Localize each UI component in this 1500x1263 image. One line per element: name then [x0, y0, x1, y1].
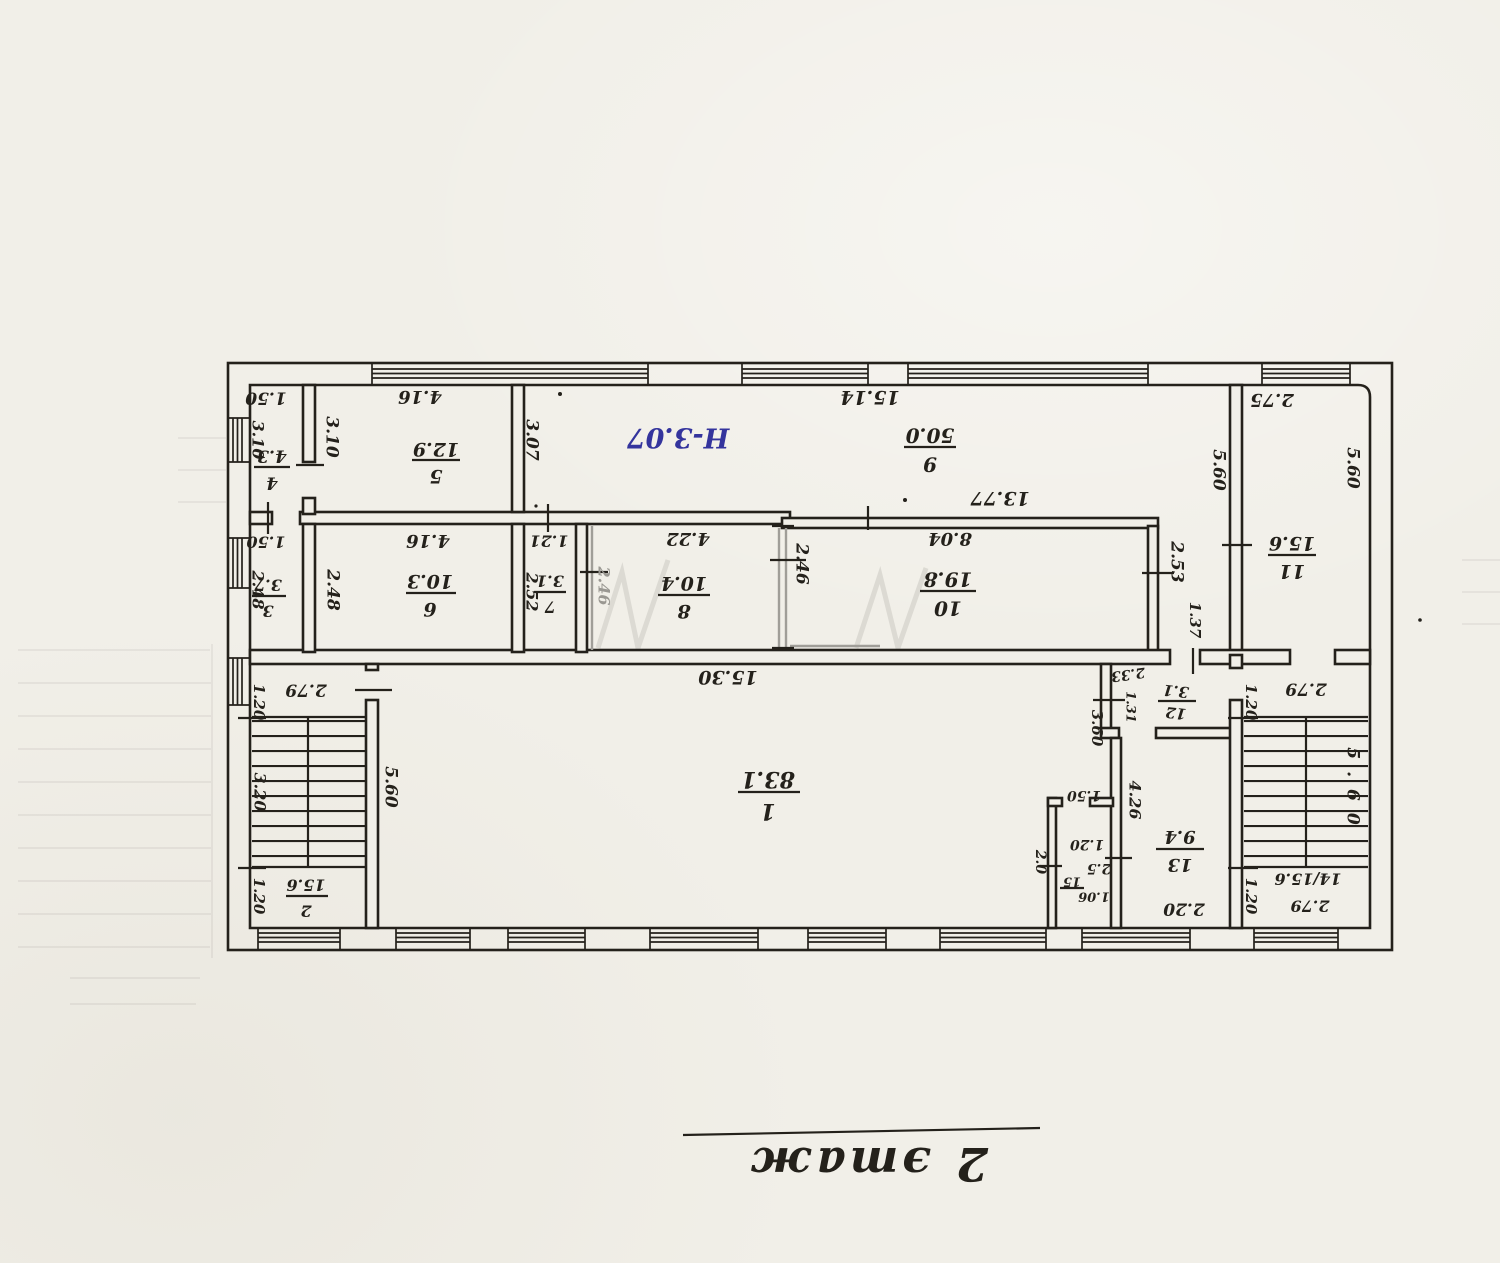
dim-room11-height: 5.60 [1343, 447, 1363, 489]
interior-walls [250, 385, 1370, 928]
dim-room4-width: 1.50 [245, 388, 287, 408]
room5-area: 12.9 [413, 438, 459, 460]
dim-room10-width: 8.04 [928, 528, 973, 549]
room14-label: 14/15.6 [1274, 870, 1341, 889]
dim-room5-width: 4.16 [398, 386, 442, 407]
room9-area: 50.0 [906, 424, 955, 448]
room7-number: 7 [544, 598, 555, 617]
dim-room14-bottom: 2.79 [1291, 897, 1331, 916]
room4-number: 4 [266, 473, 278, 493]
room10-area: 19.8 [924, 568, 973, 592]
room2-area: 15.6 [287, 876, 326, 895]
dim-room15-door: 1.20 [1070, 836, 1104, 852]
room10-number: 10 [934, 597, 962, 621]
room5-number: 5 [429, 465, 442, 487]
room13-area: 9.4 [1164, 826, 1195, 847]
dim-arm-bottom: 1.37 [1186, 602, 1204, 639]
dim-room11-width: 2.75 [1250, 389, 1295, 410]
dim-room6-width: 4.16 [406, 530, 450, 551]
dim-room12-width: 2.33 [1110, 664, 1147, 685]
labels-middle-band: 1.50 2.48 2.48 4.16 1.21 2.52 2.46 4.22 … [247, 528, 1204, 639]
dim-room7-width: 1.21 [530, 532, 569, 551]
dim-room6-height: 2.48 [323, 568, 343, 611]
dim-landing-right-width: 2.79 [1285, 679, 1328, 699]
dim-room9-height: 3.07 [522, 419, 542, 461]
room9-number: 9 [923, 453, 937, 477]
room8-area: 10.4 [661, 572, 707, 594]
watermark-strokes [598, 560, 926, 648]
dim-room5-height: 3.10 [322, 416, 342, 458]
room4-area: 4.3 [257, 446, 287, 466]
dim-room14-depth: 1.20 [1242, 878, 1260, 915]
dim-room10-left: 2.46 [792, 542, 812, 585]
dim-pencil-partition: 2.46 [595, 566, 614, 606]
room6-number: 6 [423, 598, 436, 620]
floor-plan-canvas: 15.14 1.50 4.16 2.75 3.10 3.10 3.07 5.60… [0, 0, 1500, 1263]
dim-landing-right-depth: 1.20 [1242, 684, 1260, 721]
room8-number: 8 [677, 600, 691, 622]
room6-area: 10.3 [407, 570, 453, 592]
dim-room9-width: 15.14 [840, 386, 900, 408]
floor-caption-text: 2 этаж [748, 1137, 989, 1191]
room2-number: 2 [300, 902, 312, 921]
room12-area: 3.1 [1162, 681, 1190, 702]
dim-room15-top: 1.50 [1067, 787, 1101, 803]
dim-stair-left-run: 3.20 [251, 773, 270, 812]
dim-landing-left-width: 2.79 [285, 680, 328, 700]
room13-number: 13 [1167, 854, 1192, 875]
room1-number: 1 [760, 798, 775, 824]
dim-room3-width: 1.50 [247, 533, 286, 552]
dim-stairwell-right-height: 5.60 [1343, 747, 1363, 836]
dim-room9-bottom: 13.77 [970, 487, 1030, 509]
dim-room8-width: 4.22 [666, 528, 710, 549]
room11-area: 15.6 [1269, 532, 1315, 554]
ceiling-height-note: Н-3.07 [627, 422, 731, 453]
room3-number: 3 [262, 602, 273, 621]
dim-stairwell-left-height: 5.60 [381, 766, 401, 808]
dim-room12-height: 1.31 [1123, 691, 1138, 723]
dim-room1-width: 15.30 [698, 666, 758, 688]
room15-extra-dim: 1.06 [1078, 889, 1110, 904]
dim-room15-left: 2.0 [1032, 849, 1048, 875]
floor-caption: 2 этаж [683, 1128, 1040, 1191]
dim-room2-depth: 1.20 [250, 878, 268, 915]
dim-room13-height: 4.26 [1126, 781, 1145, 820]
room11-number: 11 [1279, 560, 1305, 582]
room1-area: 83.1 [741, 766, 796, 792]
dim-room12-outside: 3.60 [1088, 710, 1106, 747]
dim-room13-width: 2.20 [1163, 899, 1206, 919]
dim-arm-width: 2.53 [1167, 540, 1187, 583]
room3-area: 3.7 [254, 576, 282, 595]
room15-number: 15 [1063, 874, 1081, 889]
room12-number: 12 [1165, 703, 1188, 723]
room7-area: 3.1 [536, 572, 564, 591]
dim-room9-arm-height: 5.60 [1209, 449, 1229, 491]
labels-bottom-band: 15.30 83.1 1 5.60 2.79 1.20 3.20 1.20 15… [250, 664, 1363, 921]
dim-landing-left-depth: 1.20 [250, 684, 268, 721]
room15-area: 2.5 [1087, 860, 1112, 876]
